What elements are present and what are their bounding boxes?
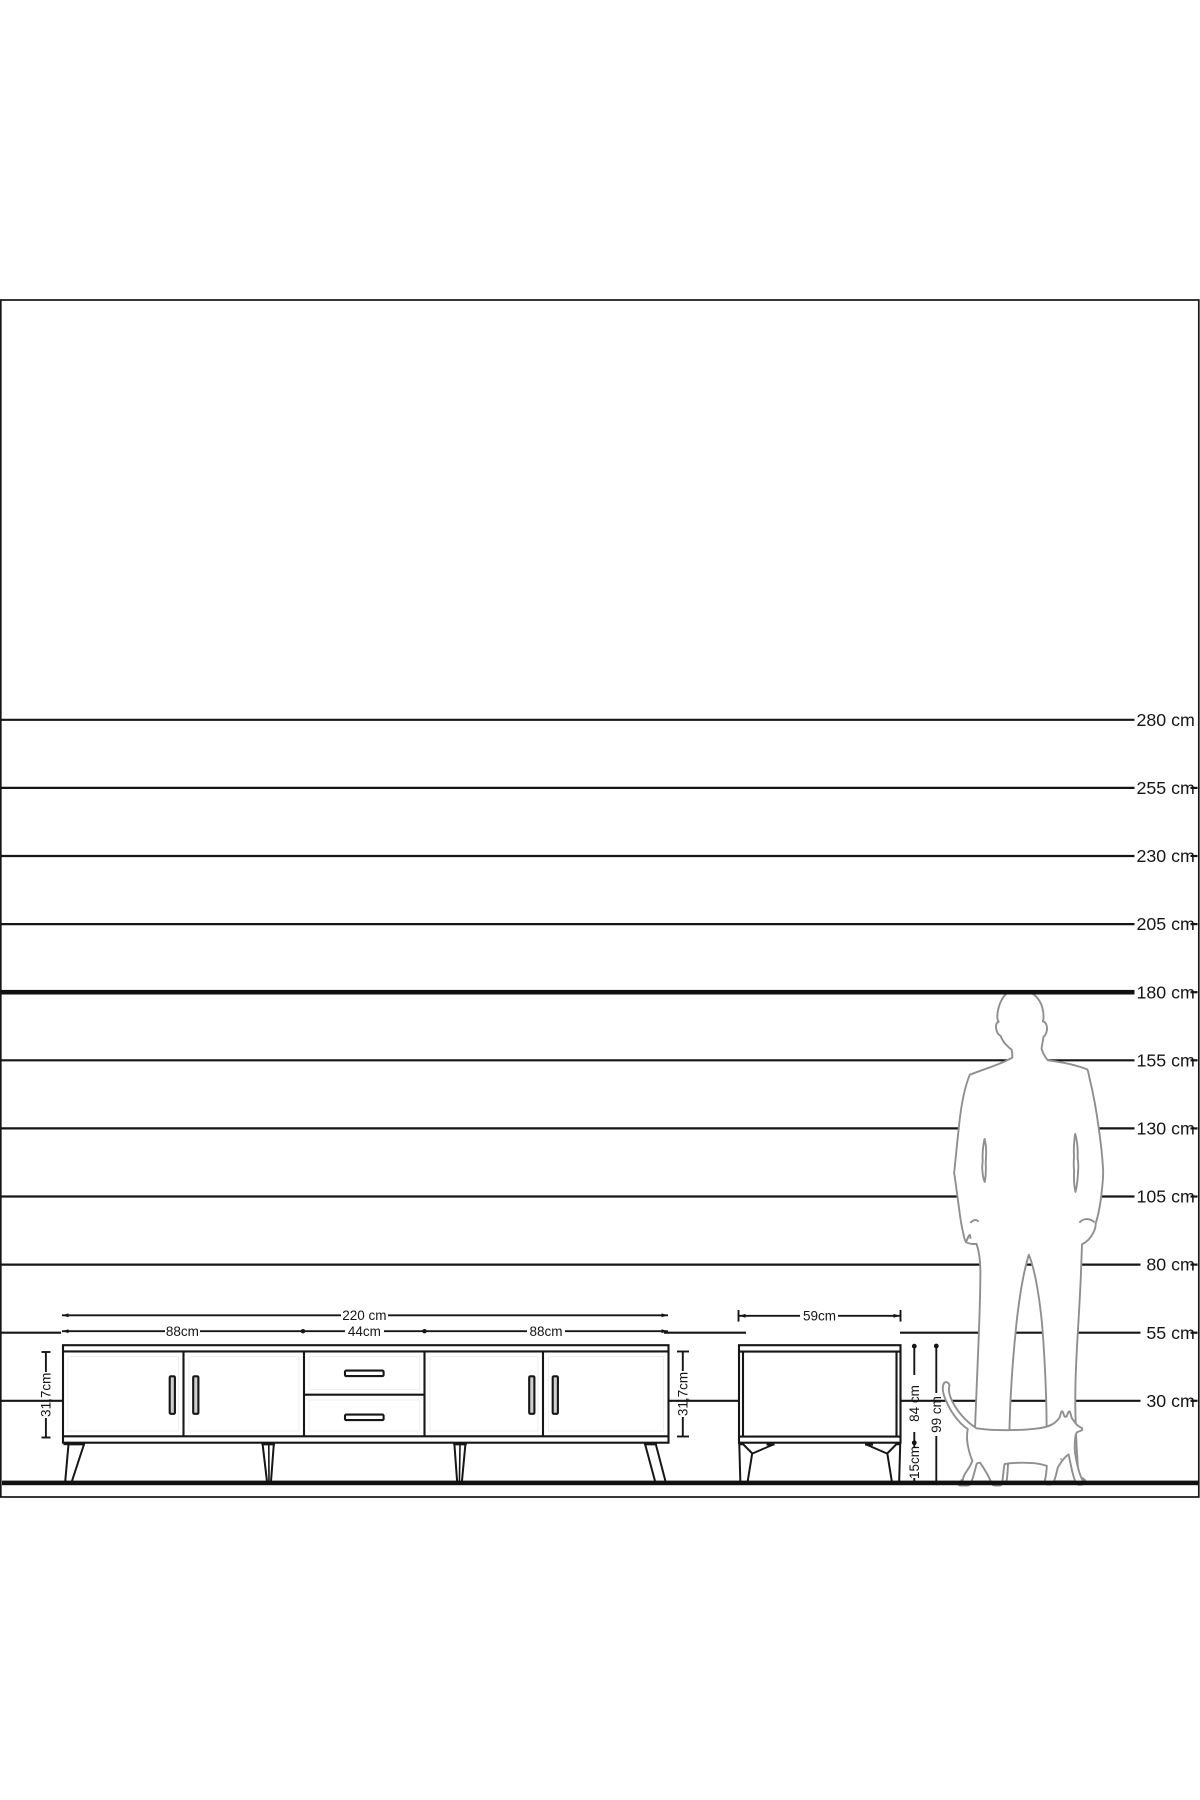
svg-text:80 cm: 80 cm — [1146, 1255, 1194, 1275]
svg-text:31,7cm: 31,7cm — [39, 1373, 54, 1417]
svg-text:130 cm: 130 cm — [1136, 1119, 1194, 1139]
svg-text:155 cm: 155 cm — [1136, 1050, 1194, 1070]
svg-text:55 cm: 55 cm — [1146, 1323, 1194, 1343]
svg-text:88cm: 88cm — [166, 1324, 199, 1339]
svg-text:99 cm: 99 cm — [929, 1396, 944, 1433]
svg-text:88cm: 88cm — [529, 1324, 562, 1339]
svg-text:15cm: 15cm — [907, 1446, 922, 1479]
svg-text:255 cm: 255 cm — [1136, 778, 1194, 798]
svg-text:230 cm: 230 cm — [1136, 846, 1194, 866]
svg-text:59cm: 59cm — [803, 1309, 836, 1324]
svg-text:180 cm: 180 cm — [1136, 982, 1194, 1002]
svg-text:30 cm: 30 cm — [1146, 1391, 1194, 1411]
svg-text:205 cm: 205 cm — [1136, 914, 1194, 934]
svg-text:84 cm: 84 cm — [907, 1385, 922, 1422]
svg-text:44cm: 44cm — [348, 1324, 381, 1339]
svg-text:31,7cm: 31,7cm — [676, 1372, 691, 1416]
svg-text:280 cm: 280 cm — [1136, 710, 1194, 730]
svg-text:105 cm: 105 cm — [1136, 1187, 1194, 1207]
svg-text:220 cm: 220 cm — [342, 1308, 386, 1323]
